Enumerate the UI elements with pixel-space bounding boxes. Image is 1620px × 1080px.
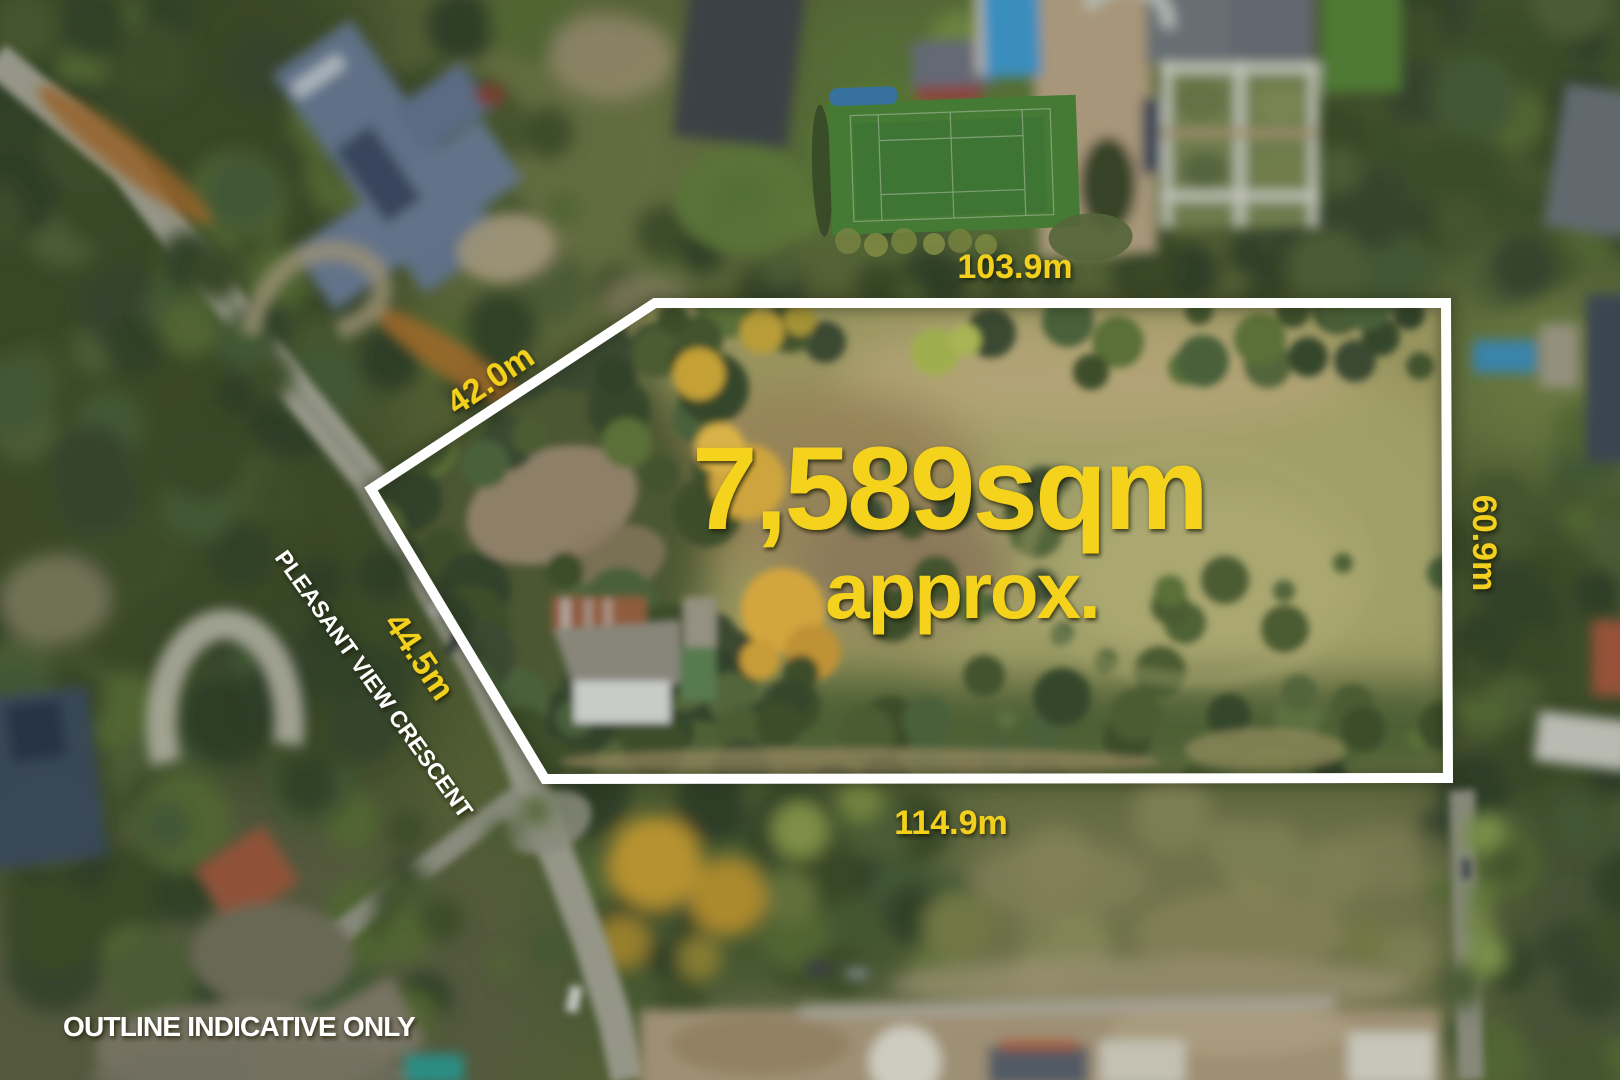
svg-text:approx.: approx. [825, 546, 1099, 635]
svg-text:114.9m: 114.9m [894, 804, 1007, 842]
svg-text:60.9m: 60.9m [1465, 495, 1503, 591]
svg-text:7,589sqm: 7,589sqm [692, 423, 1206, 555]
svg-text:103.9m: 103.9m [957, 248, 1072, 286]
svg-text:OUTLINE INDICATIVE ONLY: OUTLINE INDICATIVE ONLY [63, 1011, 416, 1042]
